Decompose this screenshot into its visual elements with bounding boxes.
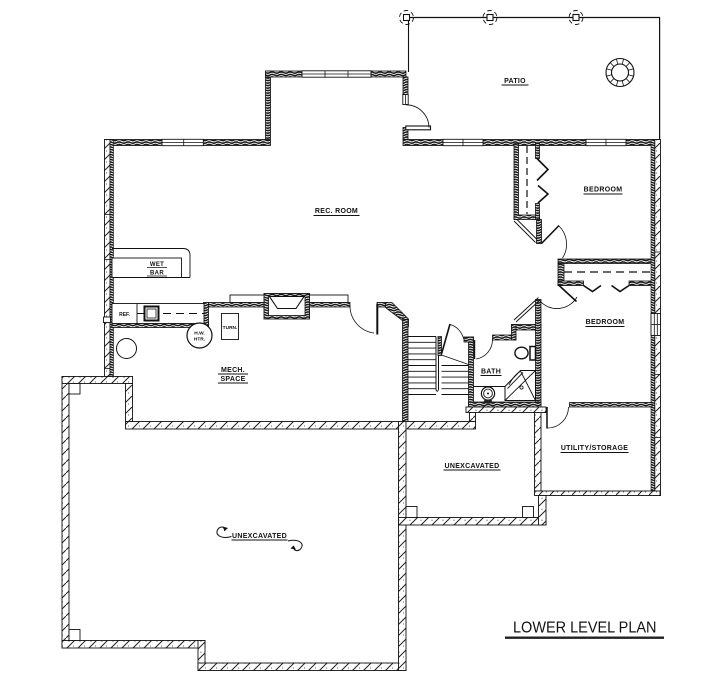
svg-text:H.W.: H.W.	[194, 331, 204, 337]
svg-text:BATH: BATH	[481, 369, 501, 376]
svg-text:HTR.: HTR.	[194, 337, 205, 343]
svg-text:UTILITY/STORAGE: UTILITY/STORAGE	[561, 445, 628, 452]
svg-text:TURN.: TURN.	[223, 325, 238, 331]
svg-text:MECH.: MECH.	[221, 367, 245, 374]
svg-text:BEDROOM: BEDROOM	[586, 319, 625, 326]
svg-text:LOWER LEVEL PLAN: LOWER LEVEL PLAN	[513, 620, 657, 637]
svg-text:UNEXCAVATED: UNEXCAVATED	[232, 533, 287, 540]
svg-text:REF.: REF.	[119, 312, 130, 318]
svg-text:UNEXCAVATED: UNEXCAVATED	[444, 463, 499, 470]
svg-text:PATIO: PATIO	[504, 78, 526, 85]
svg-text:BEDROOM: BEDROOM	[584, 187, 623, 194]
svg-text:SPACE: SPACE	[220, 376, 245, 383]
svg-text:REC. ROOM: REC. ROOM	[315, 208, 358, 215]
